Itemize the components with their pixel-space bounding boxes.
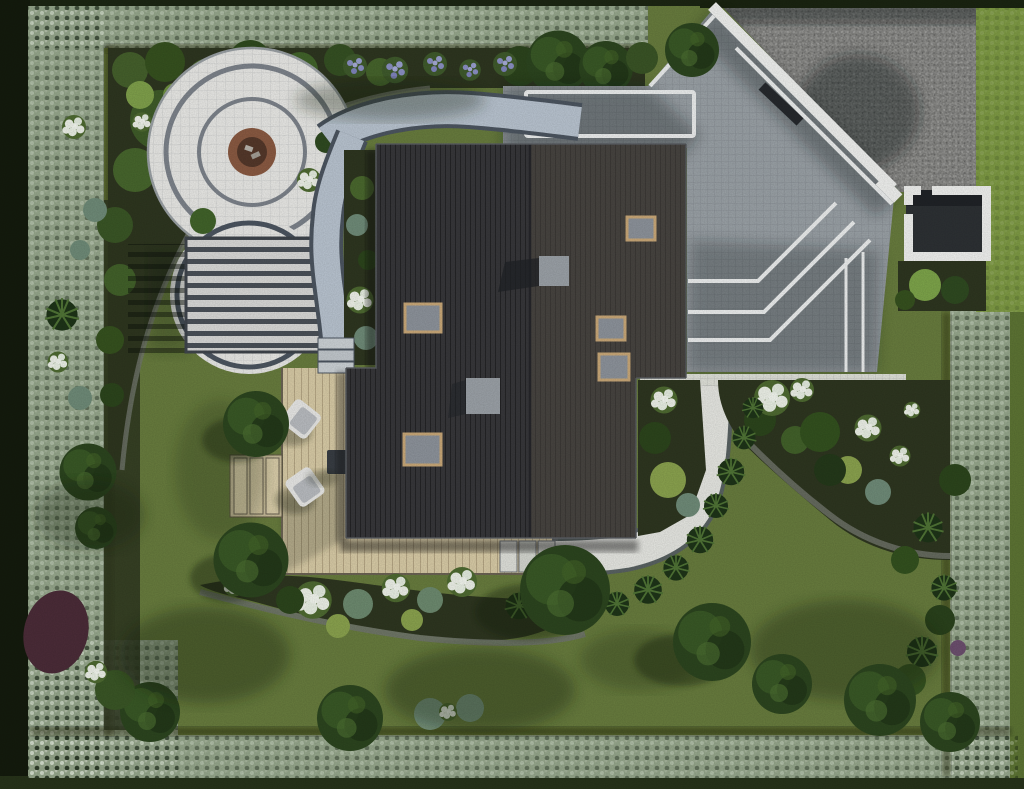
site-plan-render: Aerial landscape design render — [0, 0, 1024, 789]
photo-grain-overlay — [0, 0, 1024, 789]
site-plan-svg: Aerial landscape design render — [0, 0, 1024, 789]
